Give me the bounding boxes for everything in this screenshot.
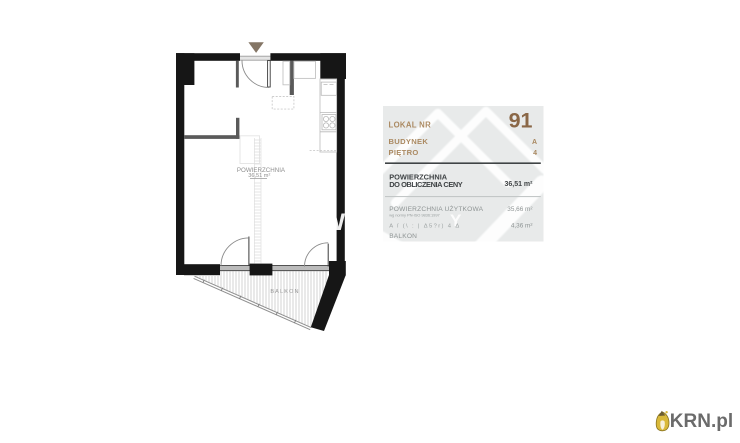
svg-text:BUDYNEK: BUDYNEK xyxy=(389,137,429,146)
svg-text:35,66 m²: 35,66 m² xyxy=(507,206,532,213)
svg-text:A ſ (\ : | Δ5?r) 4 Δ: A ſ (\ : | Δ5?r) 4 Δ xyxy=(389,224,459,230)
svg-text:LOKAL NR: LOKAL NR xyxy=(389,120,432,129)
svg-text:BALKON: BALKON xyxy=(270,289,299,295)
svg-text:BALKON: BALKON xyxy=(389,233,417,240)
svg-text:36,51 m²: 36,51 m² xyxy=(504,181,533,188)
svg-text:4,36 m²: 4,36 m² xyxy=(511,223,533,230)
svg-text:A: A xyxy=(532,139,537,146)
svg-text:wg normy PN-ISO 9836:1997: wg normy PN-ISO 9836:1997 xyxy=(389,213,440,218)
svg-text:PIĘTRO: PIĘTRO xyxy=(389,148,419,157)
svg-text:POWIERZCHNIA UŻYTKOWA: POWIERZCHNIA UŻYTKOWA xyxy=(389,204,483,213)
svg-text:DO OBLICZENIA CENY: DO OBLICZENIA CENY xyxy=(389,180,463,189)
svg-text:4: 4 xyxy=(533,150,537,157)
svg-text:91: 91 xyxy=(509,109,533,133)
svg-text:KRN.pl: KRN.pl xyxy=(670,411,733,432)
svg-text:W: W xyxy=(322,209,346,236)
